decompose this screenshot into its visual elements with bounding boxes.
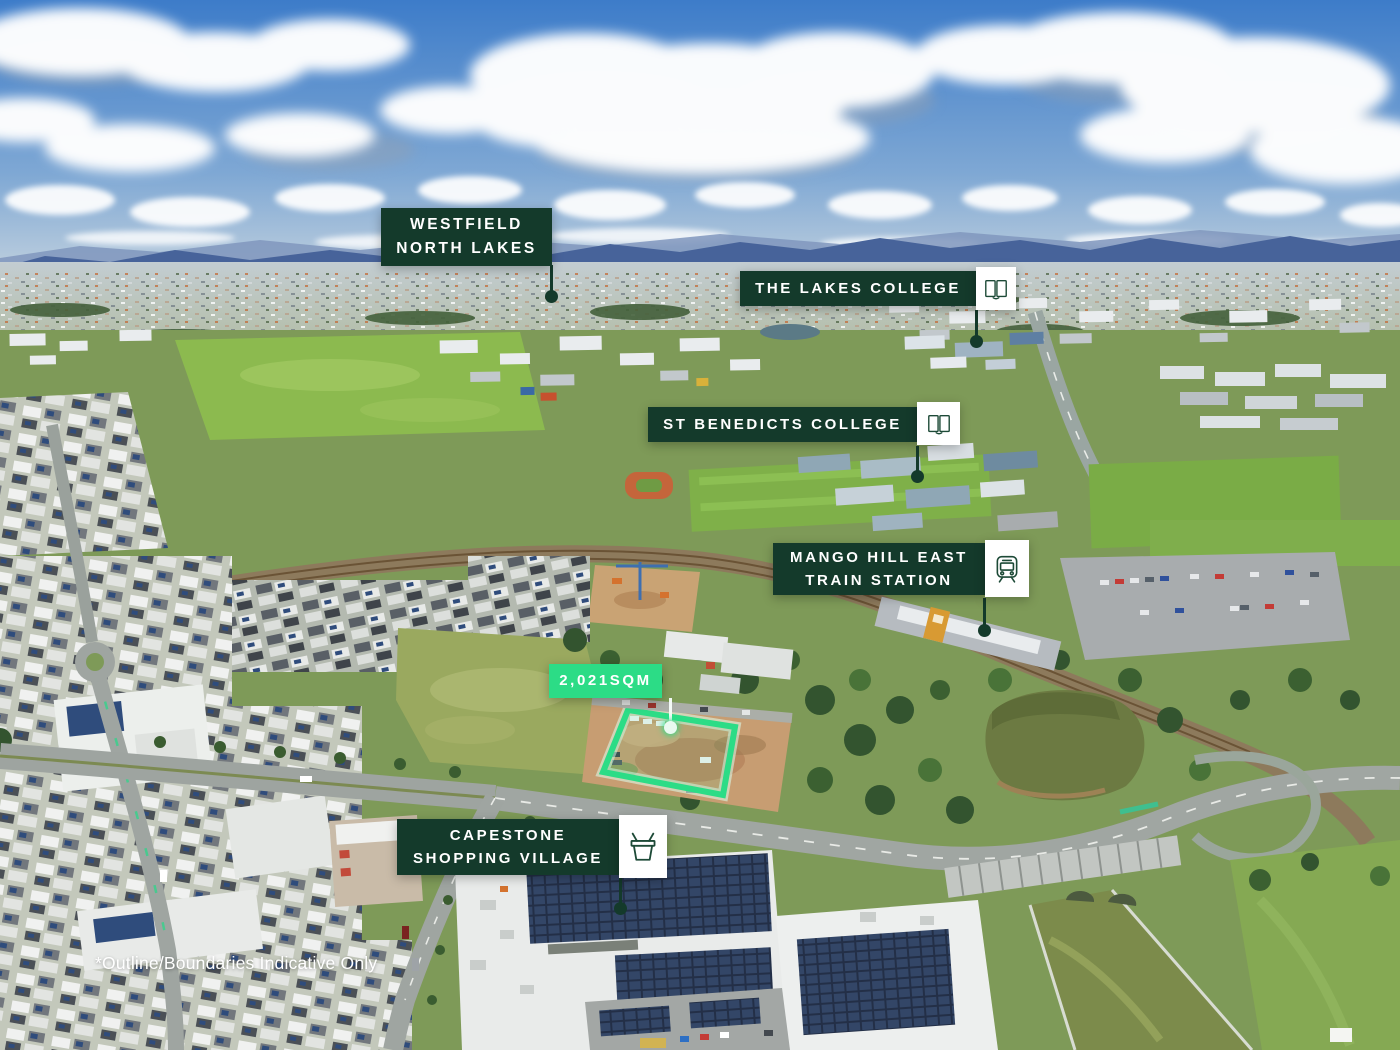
train-station-leader-line <box>983 598 986 626</box>
capestone-icon-box <box>619 815 667 878</box>
marker-st-benedicts: ST BENEDICTS COLLEGE <box>648 407 917 442</box>
st-benedicts-leader-line <box>916 446 919 472</box>
shopping-basket-icon <box>626 830 660 864</box>
train-icon <box>992 554 1022 584</box>
lakes-college-leader-line <box>975 310 978 337</box>
lakes-college-icon-box <box>976 267 1016 310</box>
open-book-icon <box>926 411 952 437</box>
capestone-dot <box>614 902 627 915</box>
marker-capestone: CAPESTONE SHOPPING VILLAGE <box>397 819 619 875</box>
lakes-college-dot <box>970 335 983 348</box>
construction-site <box>588 562 700 632</box>
st-benedicts-dot <box>911 470 924 483</box>
marker-capestone-line1: CAPESTONE <box>450 824 566 847</box>
westfield-leader-line <box>550 265 553 292</box>
st-benedicts-icon-box <box>917 402 960 445</box>
solar-array <box>797 929 955 1035</box>
aerial-photo <box>0 0 1400 1050</box>
pond <box>985 690 1144 800</box>
marker-westfield-line1: WESTFIELD <box>410 213 523 237</box>
open-book-icon <box>983 276 1009 302</box>
property-marketing-image: WESTFIELD NORTH LAKES THE LAKES COLLEGE … <box>0 0 1400 1050</box>
site-dot <box>664 721 677 734</box>
marker-lakes-college-line1: THE LAKES COLLEGE <box>755 277 961 300</box>
open-grass-field <box>175 332 545 440</box>
train-station-dot <box>978 624 991 637</box>
boundaries-disclaimer: *Outline/Boundaries Indicative Only <box>95 953 377 974</box>
westfield-dot <box>545 290 558 303</box>
marker-westfield: WESTFIELD NORTH LAKES <box>381 208 552 266</box>
site-area-tag: 2,021SQM <box>549 664 662 698</box>
capestone-leader-line <box>619 877 622 904</box>
marker-train-station: MANGO HILL EAST TRAIN STATION <box>773 543 985 595</box>
marker-st-benedicts-line1: ST BENEDICTS COLLEGE <box>663 413 902 436</box>
marker-westfield-line2: NORTH LAKES <box>396 237 537 261</box>
train-station-icon-box <box>985 540 1029 597</box>
marker-train-station-line1: MANGO HILL EAST <box>790 546 968 569</box>
site-area-label: 2,021SQM <box>559 669 652 692</box>
marker-train-station-line2: TRAIN STATION <box>805 569 952 592</box>
marker-lakes-college: THE LAKES COLLEGE <box>740 271 976 306</box>
marker-capestone-line2: SHOPPING VILLAGE <box>413 847 603 870</box>
